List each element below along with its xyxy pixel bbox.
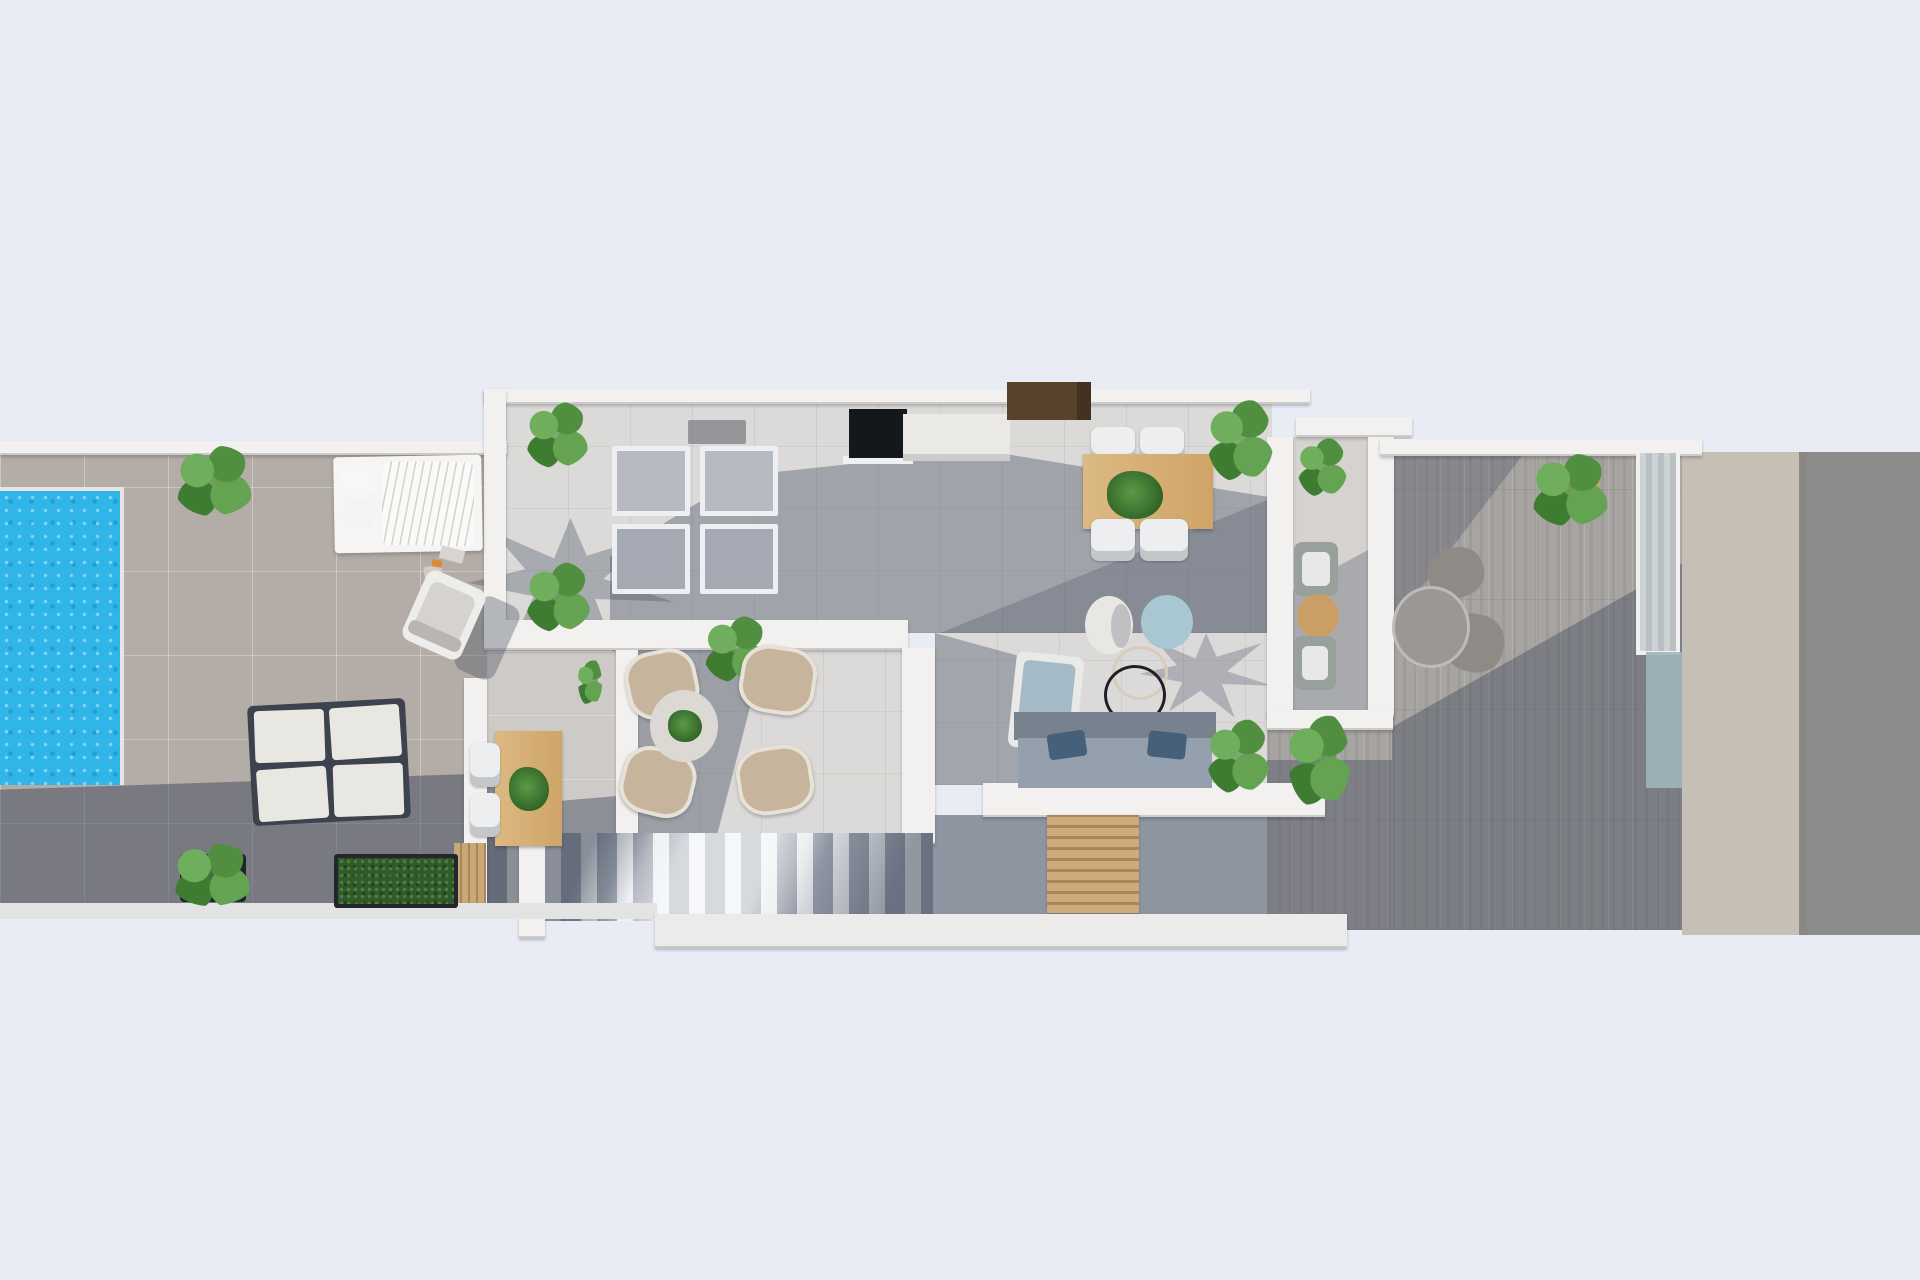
lounge-corner-plant bbox=[1206, 718, 1270, 794]
gravel-band bbox=[1807, 452, 1920, 935]
nook-bushes bbox=[1288, 712, 1350, 808]
glass-panel bbox=[1646, 652, 1682, 788]
wood-steps bbox=[1047, 815, 1139, 913]
daybed-blanket bbox=[381, 461, 474, 547]
armchair-seat bbox=[1302, 646, 1328, 680]
daybed-pillow bbox=[340, 463, 377, 497]
cabinet-edge bbox=[1077, 382, 1091, 420]
sofa-module bbox=[700, 524, 778, 594]
kitchen-counter bbox=[903, 414, 1010, 461]
between-rooms-wall bbox=[902, 648, 935, 844]
dining-table bbox=[1083, 454, 1213, 529]
dining-chair bbox=[1140, 519, 1188, 561]
stone-band-edge bbox=[1799, 452, 1807, 935]
daybed bbox=[333, 455, 483, 554]
lounger-pad bbox=[256, 766, 329, 823]
walkway-chair bbox=[470, 743, 500, 787]
hedge bbox=[338, 858, 454, 904]
sofa-module bbox=[612, 524, 690, 594]
floor-plan-canvas bbox=[0, 0, 1920, 1280]
daybed-pillow bbox=[344, 500, 375, 528]
sofa-pillow bbox=[1046, 729, 1087, 760]
walkway-chair bbox=[470, 793, 500, 837]
nook-armchair bbox=[1294, 542, 1338, 596]
nook-armchair bbox=[1294, 636, 1336, 690]
lounger-pad bbox=[254, 709, 326, 763]
pouf-white bbox=[1085, 596, 1133, 654]
kitchen-cabinet bbox=[1007, 382, 1091, 420]
stone-band bbox=[1682, 452, 1802, 935]
lounger-pad bbox=[333, 763, 405, 817]
left-wall-plant-top bbox=[524, 402, 590, 468]
bottom-edge-wing bbox=[655, 914, 1347, 948]
dining-chair bbox=[1091, 519, 1135, 561]
nook-top-wall bbox=[1296, 417, 1412, 437]
counter-edge bbox=[903, 454, 1010, 461]
poolside-orange-item bbox=[431, 559, 442, 568]
terrace-plant-top bbox=[172, 446, 256, 516]
nook-plant bbox=[1297, 437, 1347, 497]
table-centerpiece-plant bbox=[1107, 471, 1163, 519]
wood-gate bbox=[454, 843, 486, 905]
pouf-shade bbox=[1111, 604, 1131, 648]
walkway-table-plant bbox=[509, 767, 549, 811]
sofa-module bbox=[612, 446, 690, 516]
sofa-pillow bbox=[1147, 730, 1188, 760]
armchair-seat bbox=[1302, 552, 1330, 586]
left-wall-plant-bottom bbox=[524, 562, 592, 632]
sectional-sofa bbox=[1014, 712, 1216, 790]
hedge-planter bbox=[334, 854, 458, 908]
swimming-pool bbox=[0, 487, 124, 785]
glass-door bbox=[1636, 449, 1680, 655]
sofa-module bbox=[700, 446, 778, 516]
plant-foliage bbox=[1528, 454, 1612, 526]
right-terrace-plant bbox=[1528, 454, 1612, 530]
tv-screen bbox=[849, 409, 907, 458]
nook-right-wall bbox=[1368, 437, 1394, 717]
main-top-wall bbox=[484, 389, 1310, 404]
left-terrace-top-wall bbox=[0, 441, 507, 455]
sun-loungers bbox=[247, 698, 411, 826]
terrace-plant-bottom bbox=[168, 844, 256, 910]
plant-foliage bbox=[168, 844, 256, 906]
round-table bbox=[650, 690, 718, 762]
pouf-blue bbox=[1141, 595, 1193, 649]
walkway-table bbox=[495, 731, 562, 846]
modular-sofa bbox=[612, 446, 778, 594]
walkway-small-plant bbox=[578, 658, 602, 706]
bistro-table bbox=[1392, 586, 1470, 668]
round-table-plant bbox=[668, 710, 702, 742]
dining-corner-plant bbox=[1207, 398, 1273, 482]
bottom-edge-left bbox=[0, 903, 657, 919]
wall-console bbox=[688, 420, 746, 444]
nook-side-table bbox=[1297, 594, 1339, 638]
main-right-wall bbox=[1267, 437, 1293, 717]
lounger-pad bbox=[329, 704, 402, 761]
